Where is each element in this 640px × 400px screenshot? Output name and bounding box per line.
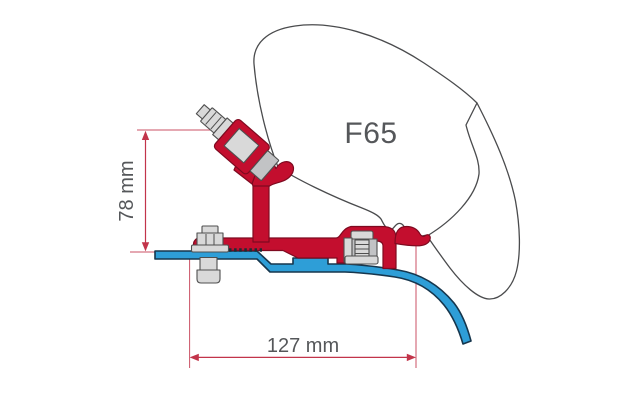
bolt-nut <box>197 270 220 283</box>
width-dimension-label: 127 mm <box>267 335 339 357</box>
product-label: F65 <box>344 117 397 150</box>
arrow-down-icon <box>142 242 149 251</box>
bolt-washer <box>192 245 229 252</box>
adapter-diagram: 78 mm 127 mm F65 <box>0 0 640 400</box>
awning-end-cap-outline <box>427 103 519 299</box>
clamp-flange <box>345 256 378 264</box>
height-dimension-label: 78 mm <box>116 160 138 221</box>
arrow-up-icon <box>142 131 149 140</box>
bracket-right-hook <box>395 227 430 246</box>
bracket-diagonal-clamp <box>187 96 282 186</box>
bolt-shaft <box>200 258 217 271</box>
diagram-svg: 78 mm 127 mm F65 <box>0 0 640 400</box>
arrow-right-icon <box>407 354 416 361</box>
arrow-left-icon <box>190 354 199 361</box>
bolt-head <box>197 233 223 246</box>
